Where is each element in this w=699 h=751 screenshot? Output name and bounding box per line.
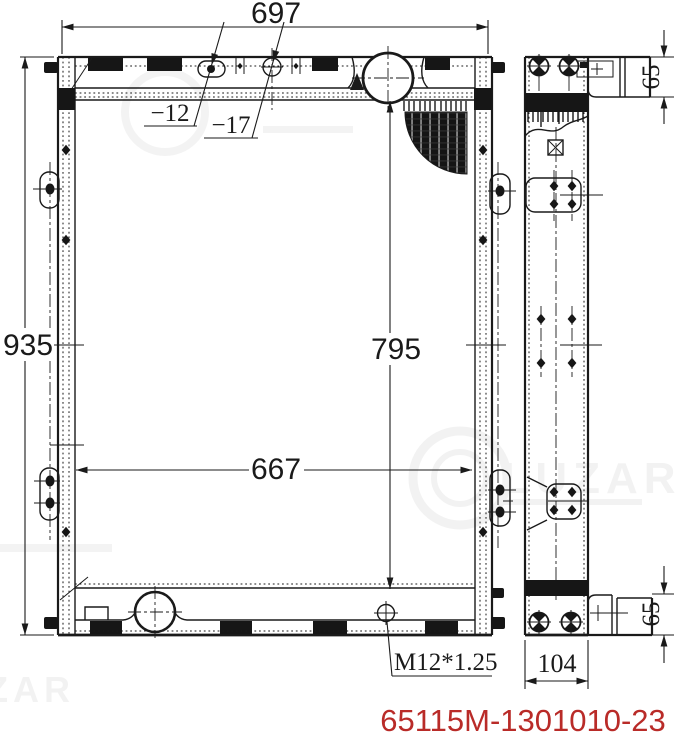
dim-core-height-label: 795 [371, 333, 421, 366]
crossed-square-mark [548, 140, 563, 155]
dim-bracket-offset-bottom-label: 65 [638, 602, 665, 627]
dim-core-height: 795 [370, 101, 422, 589]
dim-overall-height-label: 935 [3, 329, 53, 362]
watermark-text-bottom: ZAR [0, 669, 75, 710]
dim-depth: 104 [525, 640, 588, 689]
mounting-tab [425, 58, 450, 70]
radiator-drawing: LUZAR ZAR [0, 0, 699, 751]
hole-group-middle [537, 306, 602, 377]
dim-core-width-label: 667 [251, 453, 301, 486]
watermark-logo: LUZAR ZAR [0, 72, 682, 710]
label-hole-diameter-17: −17 [211, 112, 250, 139]
dim-depth-label: 104 [538, 649, 577, 678]
part-number: 65115M-1301010-23 [380, 703, 666, 738]
side-view [503, 54, 652, 635]
dim-bracket-offset-top: 65 [638, 30, 674, 124]
label-drain-plug-thread: M12*1.25 [394, 649, 497, 676]
core-fins-comb [404, 101, 466, 111]
outlet-pipe [128, 586, 182, 638]
bolt-head [559, 610, 583, 634]
dim-bracket-offset-bottom: 65 [638, 566, 674, 663]
dim-overall-width-label: 697 [251, 0, 301, 30]
hole-group-upper [526, 170, 603, 221]
mounting-tab [147, 58, 182, 71]
dim-bracket-offset-top-label: 65 [638, 65, 665, 90]
mounting-tab [88, 58, 123, 71]
bolt-head [527, 610, 551, 634]
tank-band-bottom [525, 580, 588, 596]
dim-overall-width: 697 [62, 0, 488, 54]
mounting-tab [312, 58, 338, 71]
drain-plug-hole [374, 601, 398, 625]
tank-band-top [525, 93, 588, 112]
bracket-left-bottom [34, 468, 60, 520]
label-hole-diameter-12: −12 [150, 100, 189, 127]
core-section-quarter [405, 112, 467, 174]
technical-drawing-page: LUZAR ZAR [0, 0, 699, 751]
